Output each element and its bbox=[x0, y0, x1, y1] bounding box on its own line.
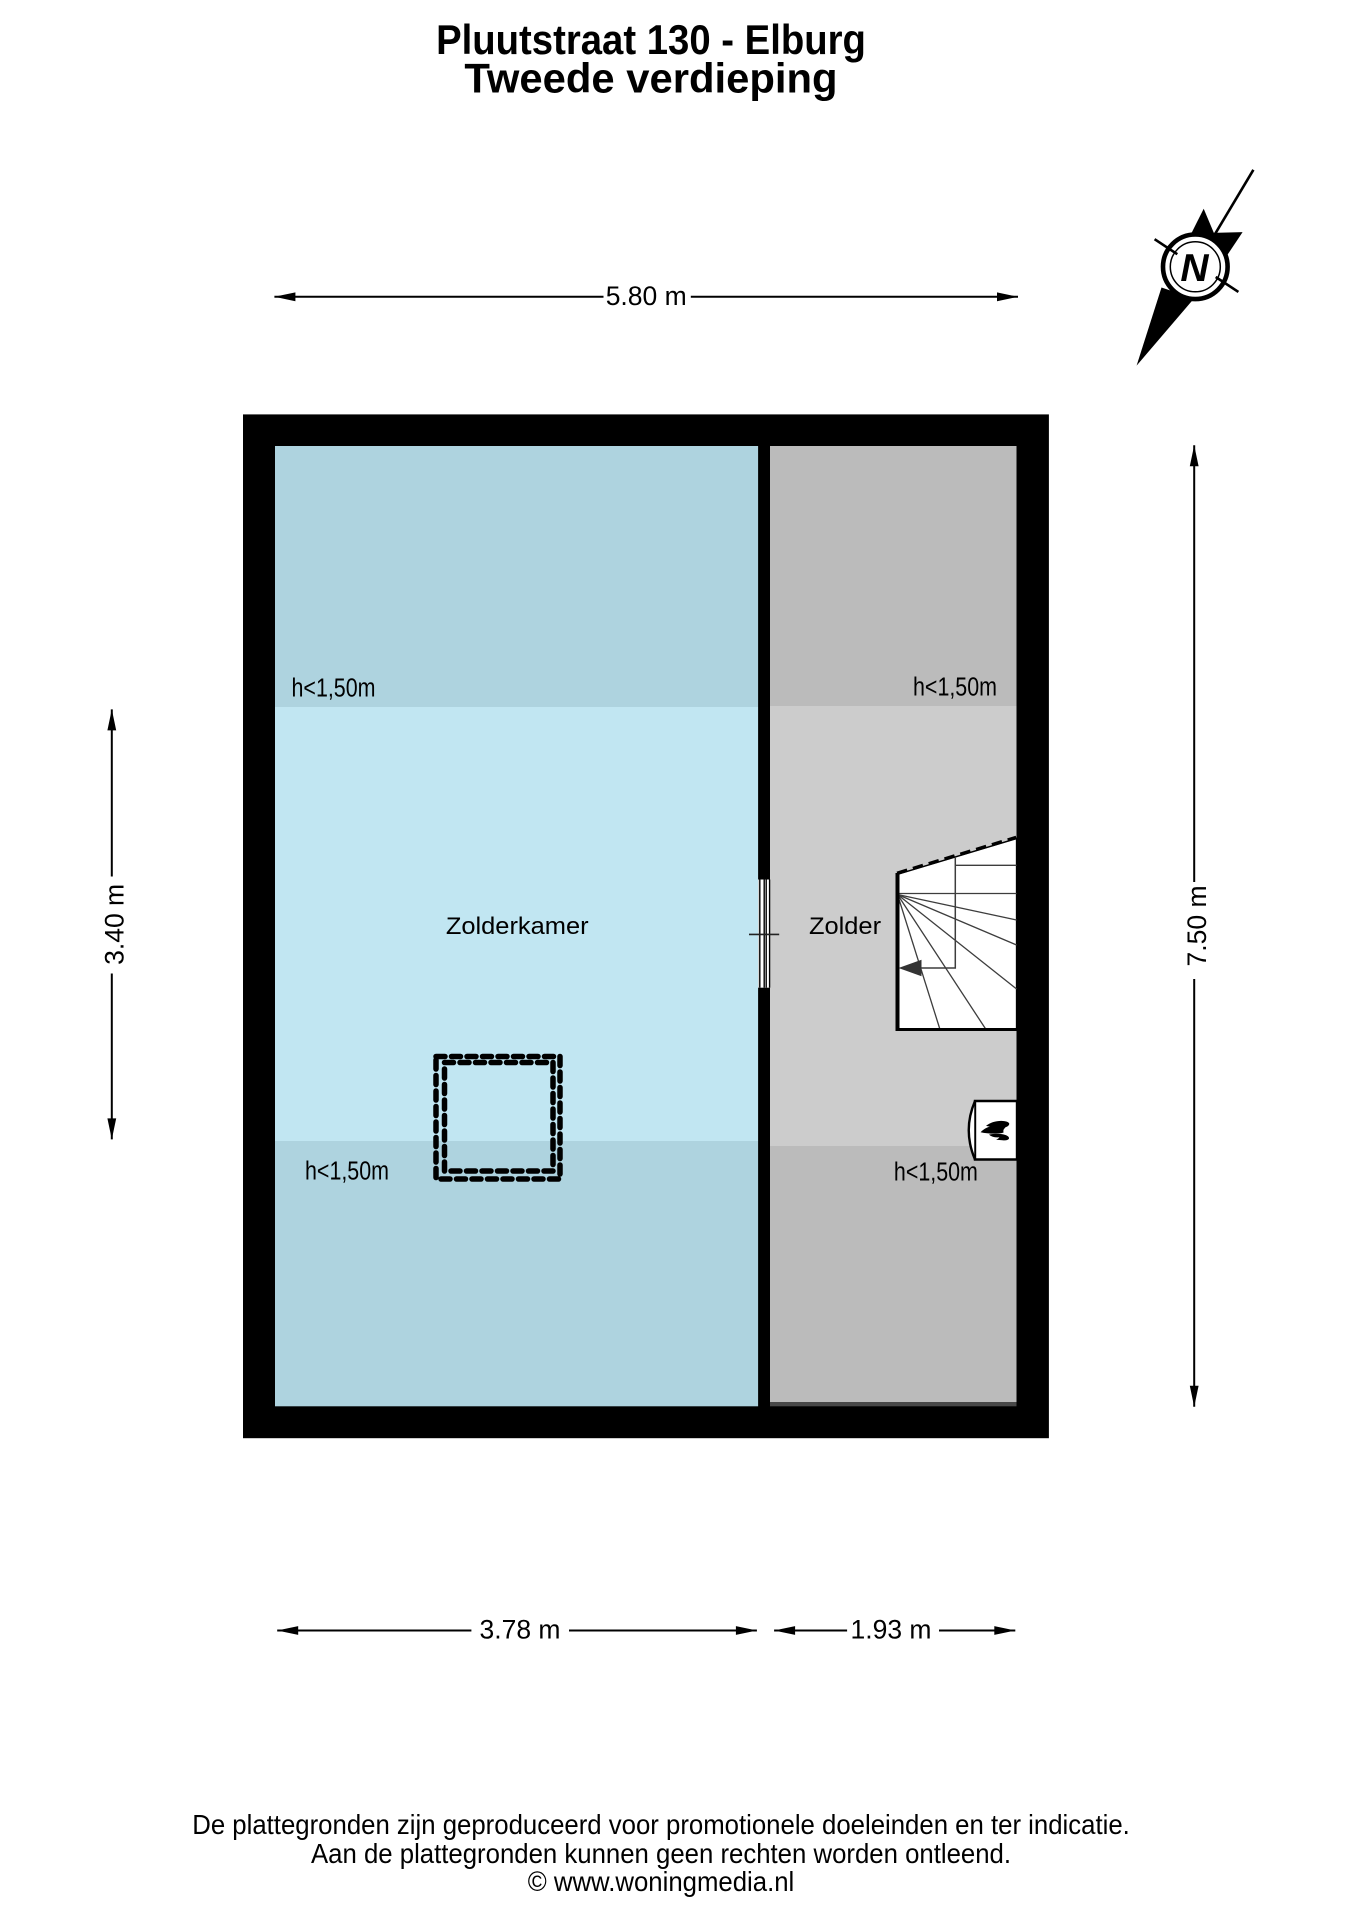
svg-text:© www.woningmedia.nl: © www.woningmedia.nl bbox=[528, 1866, 795, 1897]
svg-text:h<1,50m: h<1,50m bbox=[305, 1157, 389, 1186]
svg-text:De plattegronden zijn geproduc: De plattegronden zijn geproduceerd voor … bbox=[192, 1809, 1130, 1840]
svg-text:Aan de plattegronden kunnen ge: Aan de plattegronden kunnen geen rechten… bbox=[311, 1838, 1011, 1869]
svg-text:N: N bbox=[1180, 247, 1209, 290]
svg-text:h<1,50m: h<1,50m bbox=[913, 673, 997, 702]
svg-text:Tweede verdieping: Tweede verdieping bbox=[464, 54, 837, 101]
svg-text:3.40 m: 3.40 m bbox=[100, 884, 130, 965]
svg-text:7.50 m: 7.50 m bbox=[1182, 885, 1212, 966]
svg-text:3.78 m: 3.78 m bbox=[479, 1615, 560, 1645]
svg-text:Zolder: Zolder bbox=[809, 914, 881, 940]
svg-text:1.93 m: 1.93 m bbox=[850, 1615, 931, 1645]
svg-text:h<1,50m: h<1,50m bbox=[894, 1158, 978, 1187]
svg-text:5.80 m: 5.80 m bbox=[606, 281, 687, 311]
svg-text:h<1,50m: h<1,50m bbox=[292, 674, 376, 703]
svg-text:Zolderkamer: Zolderkamer bbox=[446, 914, 589, 940]
